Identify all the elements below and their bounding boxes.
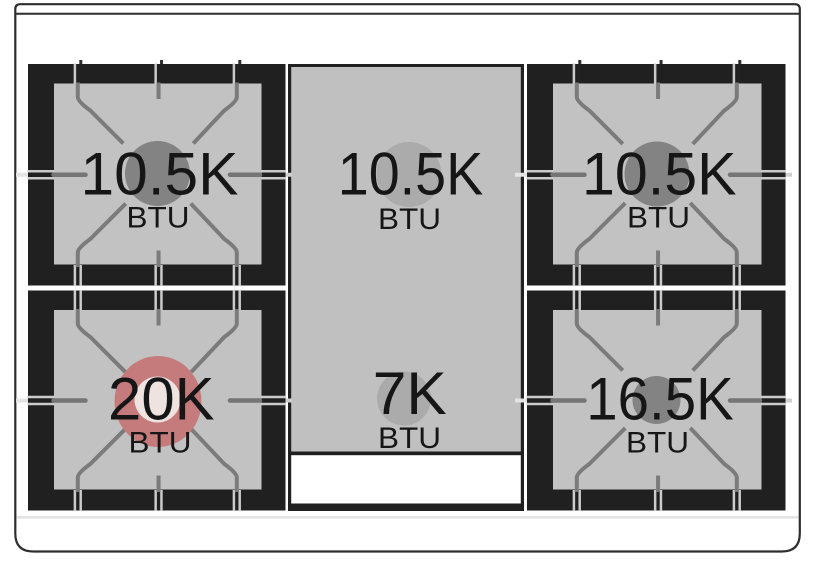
svg-text:BTU: BTU bbox=[129, 427, 192, 460]
svg-text:BTU: BTU bbox=[378, 203, 441, 236]
svg-text:10.5K: 10.5K bbox=[81, 140, 239, 208]
svg-text:7K: 7K bbox=[373, 359, 447, 427]
svg-text:20K: 20K bbox=[108, 365, 215, 433]
svg-text:10.5K: 10.5K bbox=[338, 140, 484, 208]
svg-text:BTU: BTU bbox=[378, 422, 441, 455]
svg-text:16.5K: 16.5K bbox=[586, 365, 734, 433]
svg-text:BTU: BTU bbox=[627, 202, 690, 235]
svg-text:BTU: BTU bbox=[626, 427, 689, 460]
svg-text:BTU: BTU bbox=[127, 202, 190, 235]
svg-text:10.5K: 10.5K bbox=[582, 140, 737, 208]
